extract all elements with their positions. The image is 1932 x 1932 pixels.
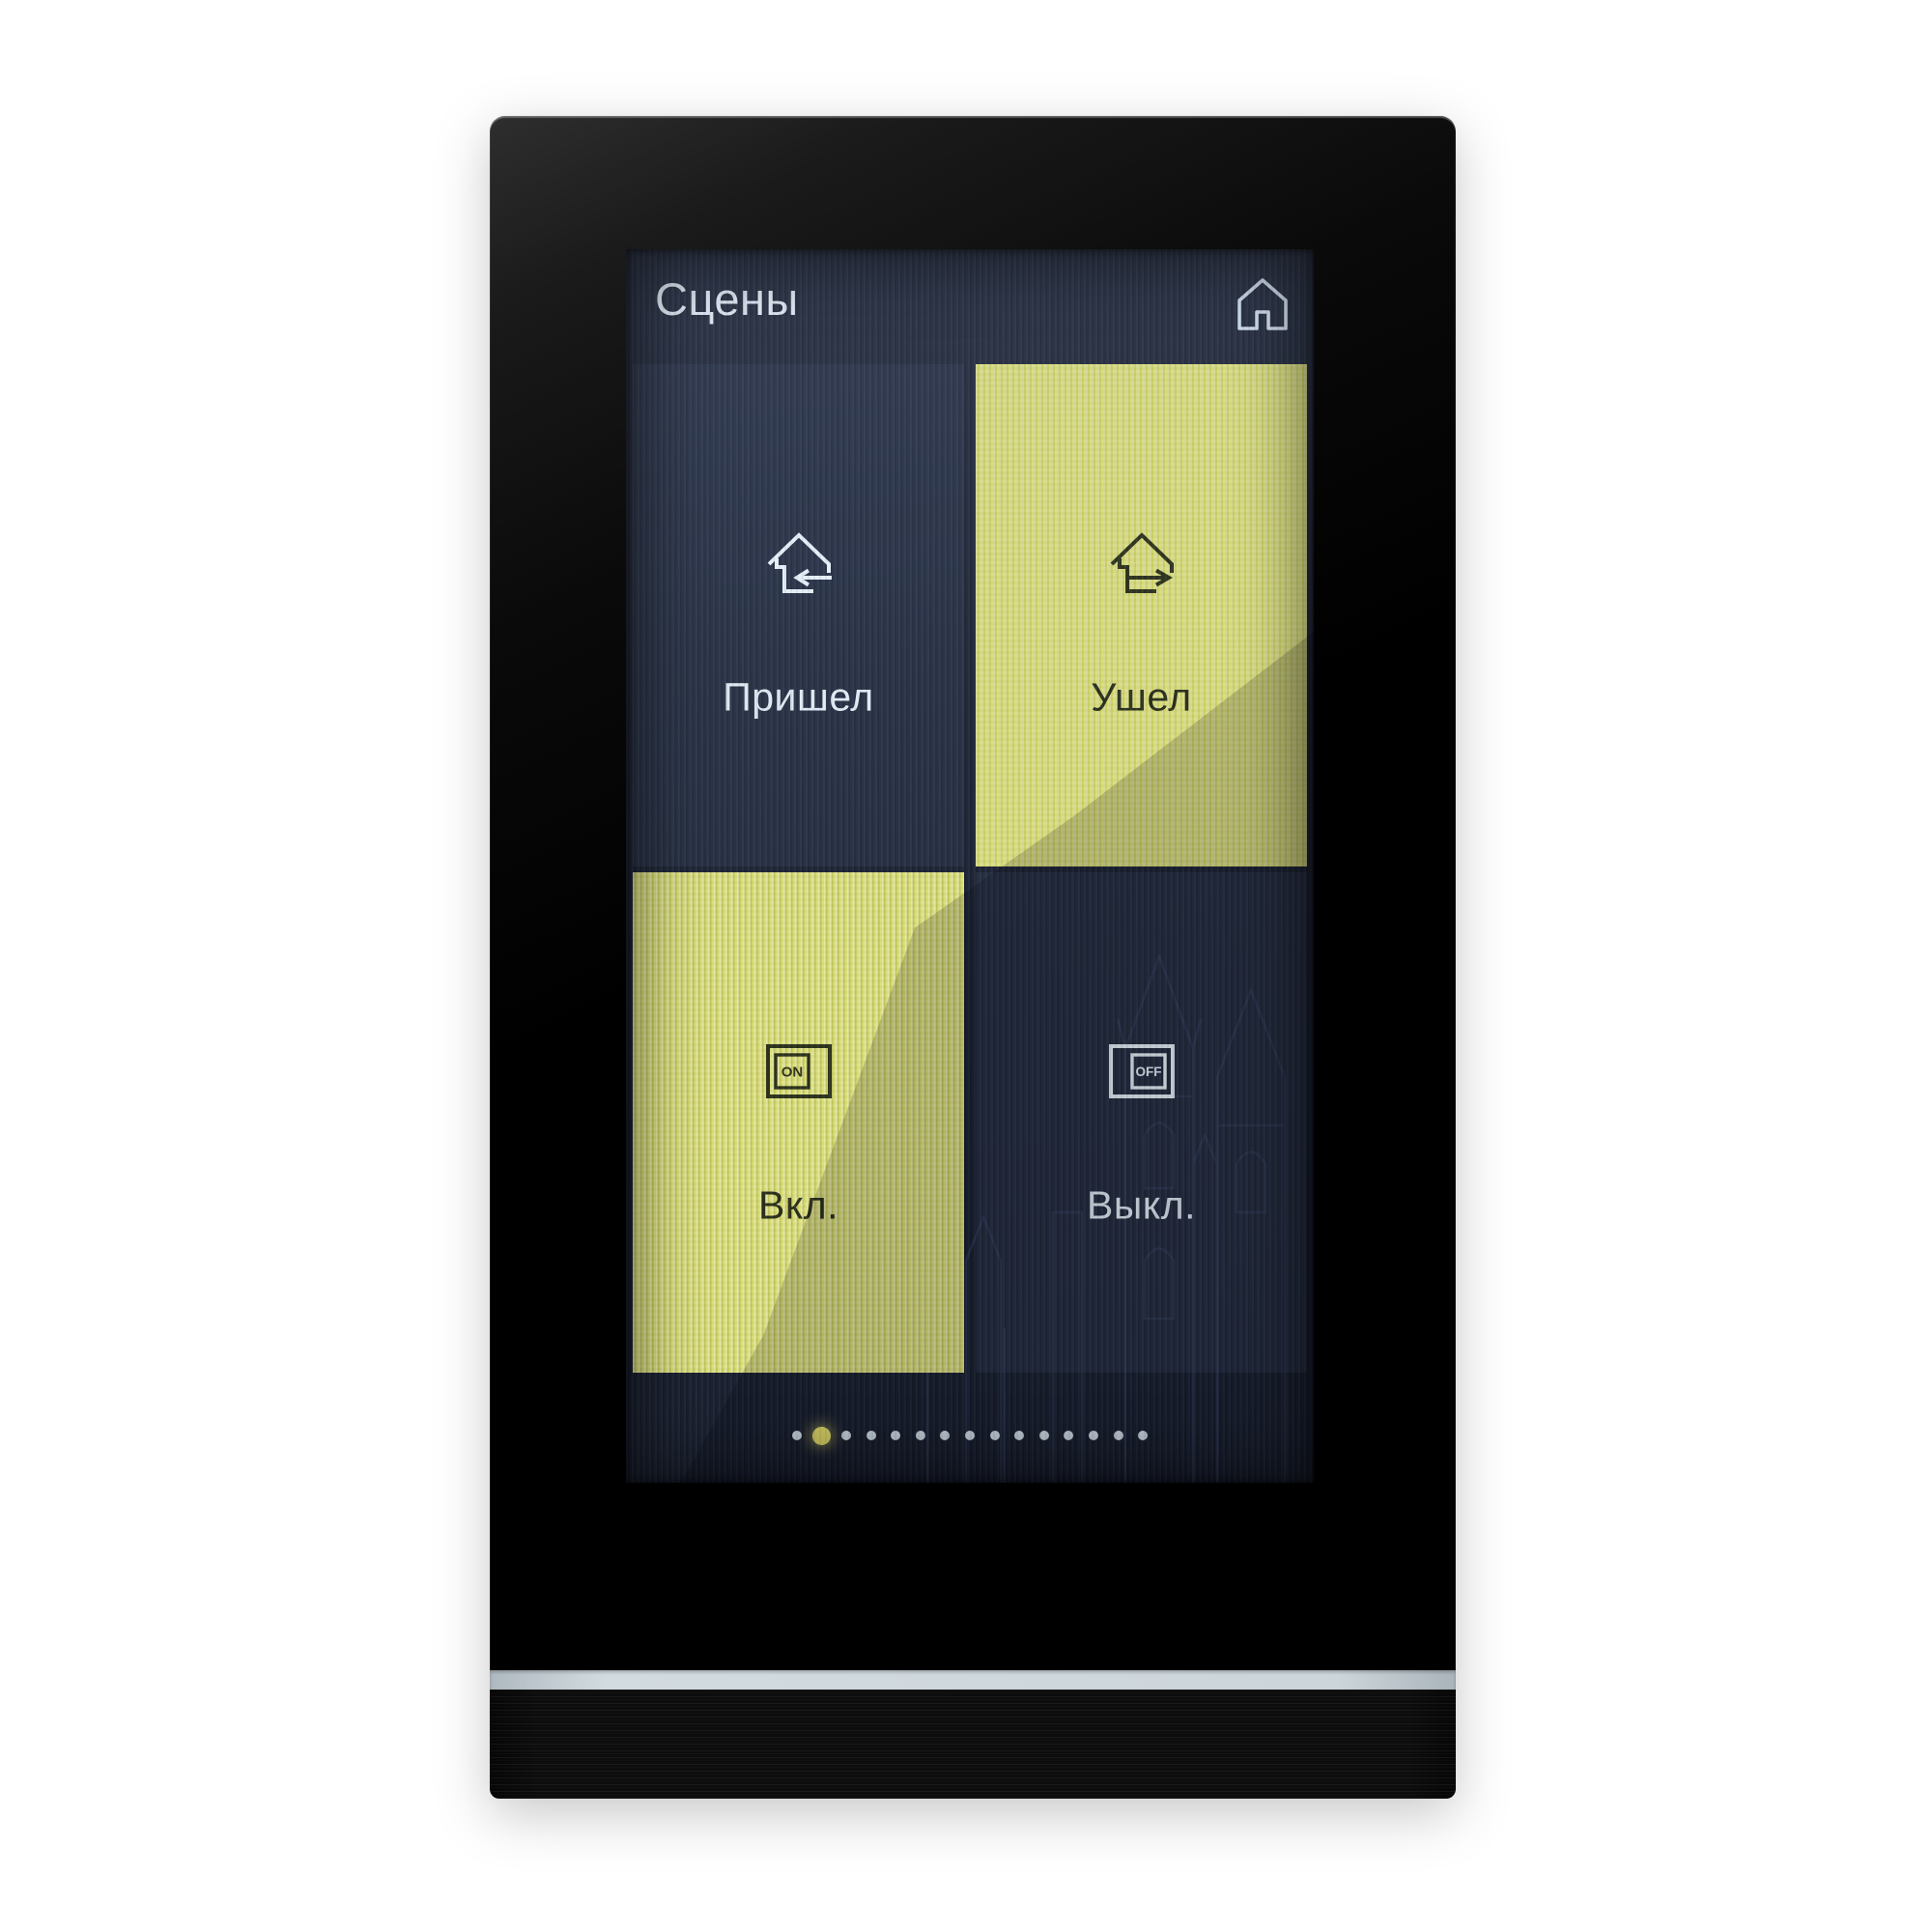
page-dot-slot <box>834 1419 859 1452</box>
home-button[interactable] <box>1235 275 1291 333</box>
page-dot-9[interactable] <box>990 1431 1000 1440</box>
page-dot-slot <box>1081 1419 1106 1452</box>
product-photo-stage: Сцены <box>0 0 1932 1932</box>
page-dot-13[interactable] <box>1089 1431 1098 1440</box>
page-dot-10[interactable] <box>1014 1431 1024 1440</box>
scene-tile-arrived[interactable]: Пришел <box>633 364 964 867</box>
page-dot-14[interactable] <box>1114 1431 1123 1440</box>
knx-touch-panel: Сцены <box>490 116 1456 1799</box>
home-icon <box>1235 275 1291 333</box>
page-dot-15[interactable] <box>1138 1431 1148 1440</box>
page-indicator <box>626 1419 1314 1452</box>
house-leave-icon <box>1105 526 1179 600</box>
svg-text:OFF: OFF <box>1135 1065 1161 1079</box>
page-dot-1[interactable] <box>792 1431 802 1440</box>
page-dot-slot <box>1106 1419 1131 1452</box>
screen-header: Сцены <box>626 249 1314 364</box>
scene-tile-label: Пришел <box>633 675 964 721</box>
page-dot-2[interactable] <box>812 1427 831 1445</box>
scene-tile-off[interactable]: OFF Выкл. <box>976 872 1307 1373</box>
page-dot-12[interactable] <box>1064 1431 1073 1440</box>
page-dot-slot <box>1032 1419 1057 1452</box>
page-dot-slot <box>957 1419 982 1452</box>
page-title: Сцены <box>655 272 799 326</box>
switch-off-icon: OFF <box>1109 1044 1175 1098</box>
scene-tile-on[interactable]: ON Вкл. <box>633 872 964 1373</box>
page-dot-slot <box>933 1419 958 1452</box>
house-arrive-icon <box>762 526 836 600</box>
svg-text:ON: ON <box>781 1065 803 1081</box>
page-dot-slot <box>859 1419 884 1452</box>
page-dot-slot <box>810 1419 835 1452</box>
proximity-light-bar <box>490 1670 1456 1690</box>
page-dot-7[interactable] <box>940 1431 950 1440</box>
page-dot-slot <box>784 1419 810 1452</box>
touchscreen: Сцены <box>626 249 1314 1483</box>
scene-tile-label: Выкл. <box>976 1183 1307 1229</box>
page-dot-slot <box>982 1419 1008 1452</box>
page-dot-3[interactable] <box>841 1431 851 1440</box>
page-dot-8[interactable] <box>965 1431 975 1440</box>
page-dot-slot <box>1057 1419 1082 1452</box>
switch-on-icon: ON <box>766 1044 832 1098</box>
page-dot-slot <box>1130 1419 1155 1452</box>
scene-tile-label: Вкл. <box>633 1183 964 1229</box>
page-dot-5[interactable] <box>891 1431 900 1440</box>
page-dot-slot <box>883 1419 908 1452</box>
scene-tile-label: Ушел <box>976 675 1307 721</box>
page-dot-11[interactable] <box>1039 1431 1049 1440</box>
page-dot-6[interactable] <box>916 1431 925 1440</box>
page-dot-slot <box>908 1419 933 1452</box>
scene-tile-left[interactable]: Ушел <box>976 364 1307 867</box>
page-dot-slot <box>1007 1419 1032 1452</box>
page-dot-4[interactable] <box>867 1431 876 1440</box>
device-base <box>490 1690 1456 1799</box>
